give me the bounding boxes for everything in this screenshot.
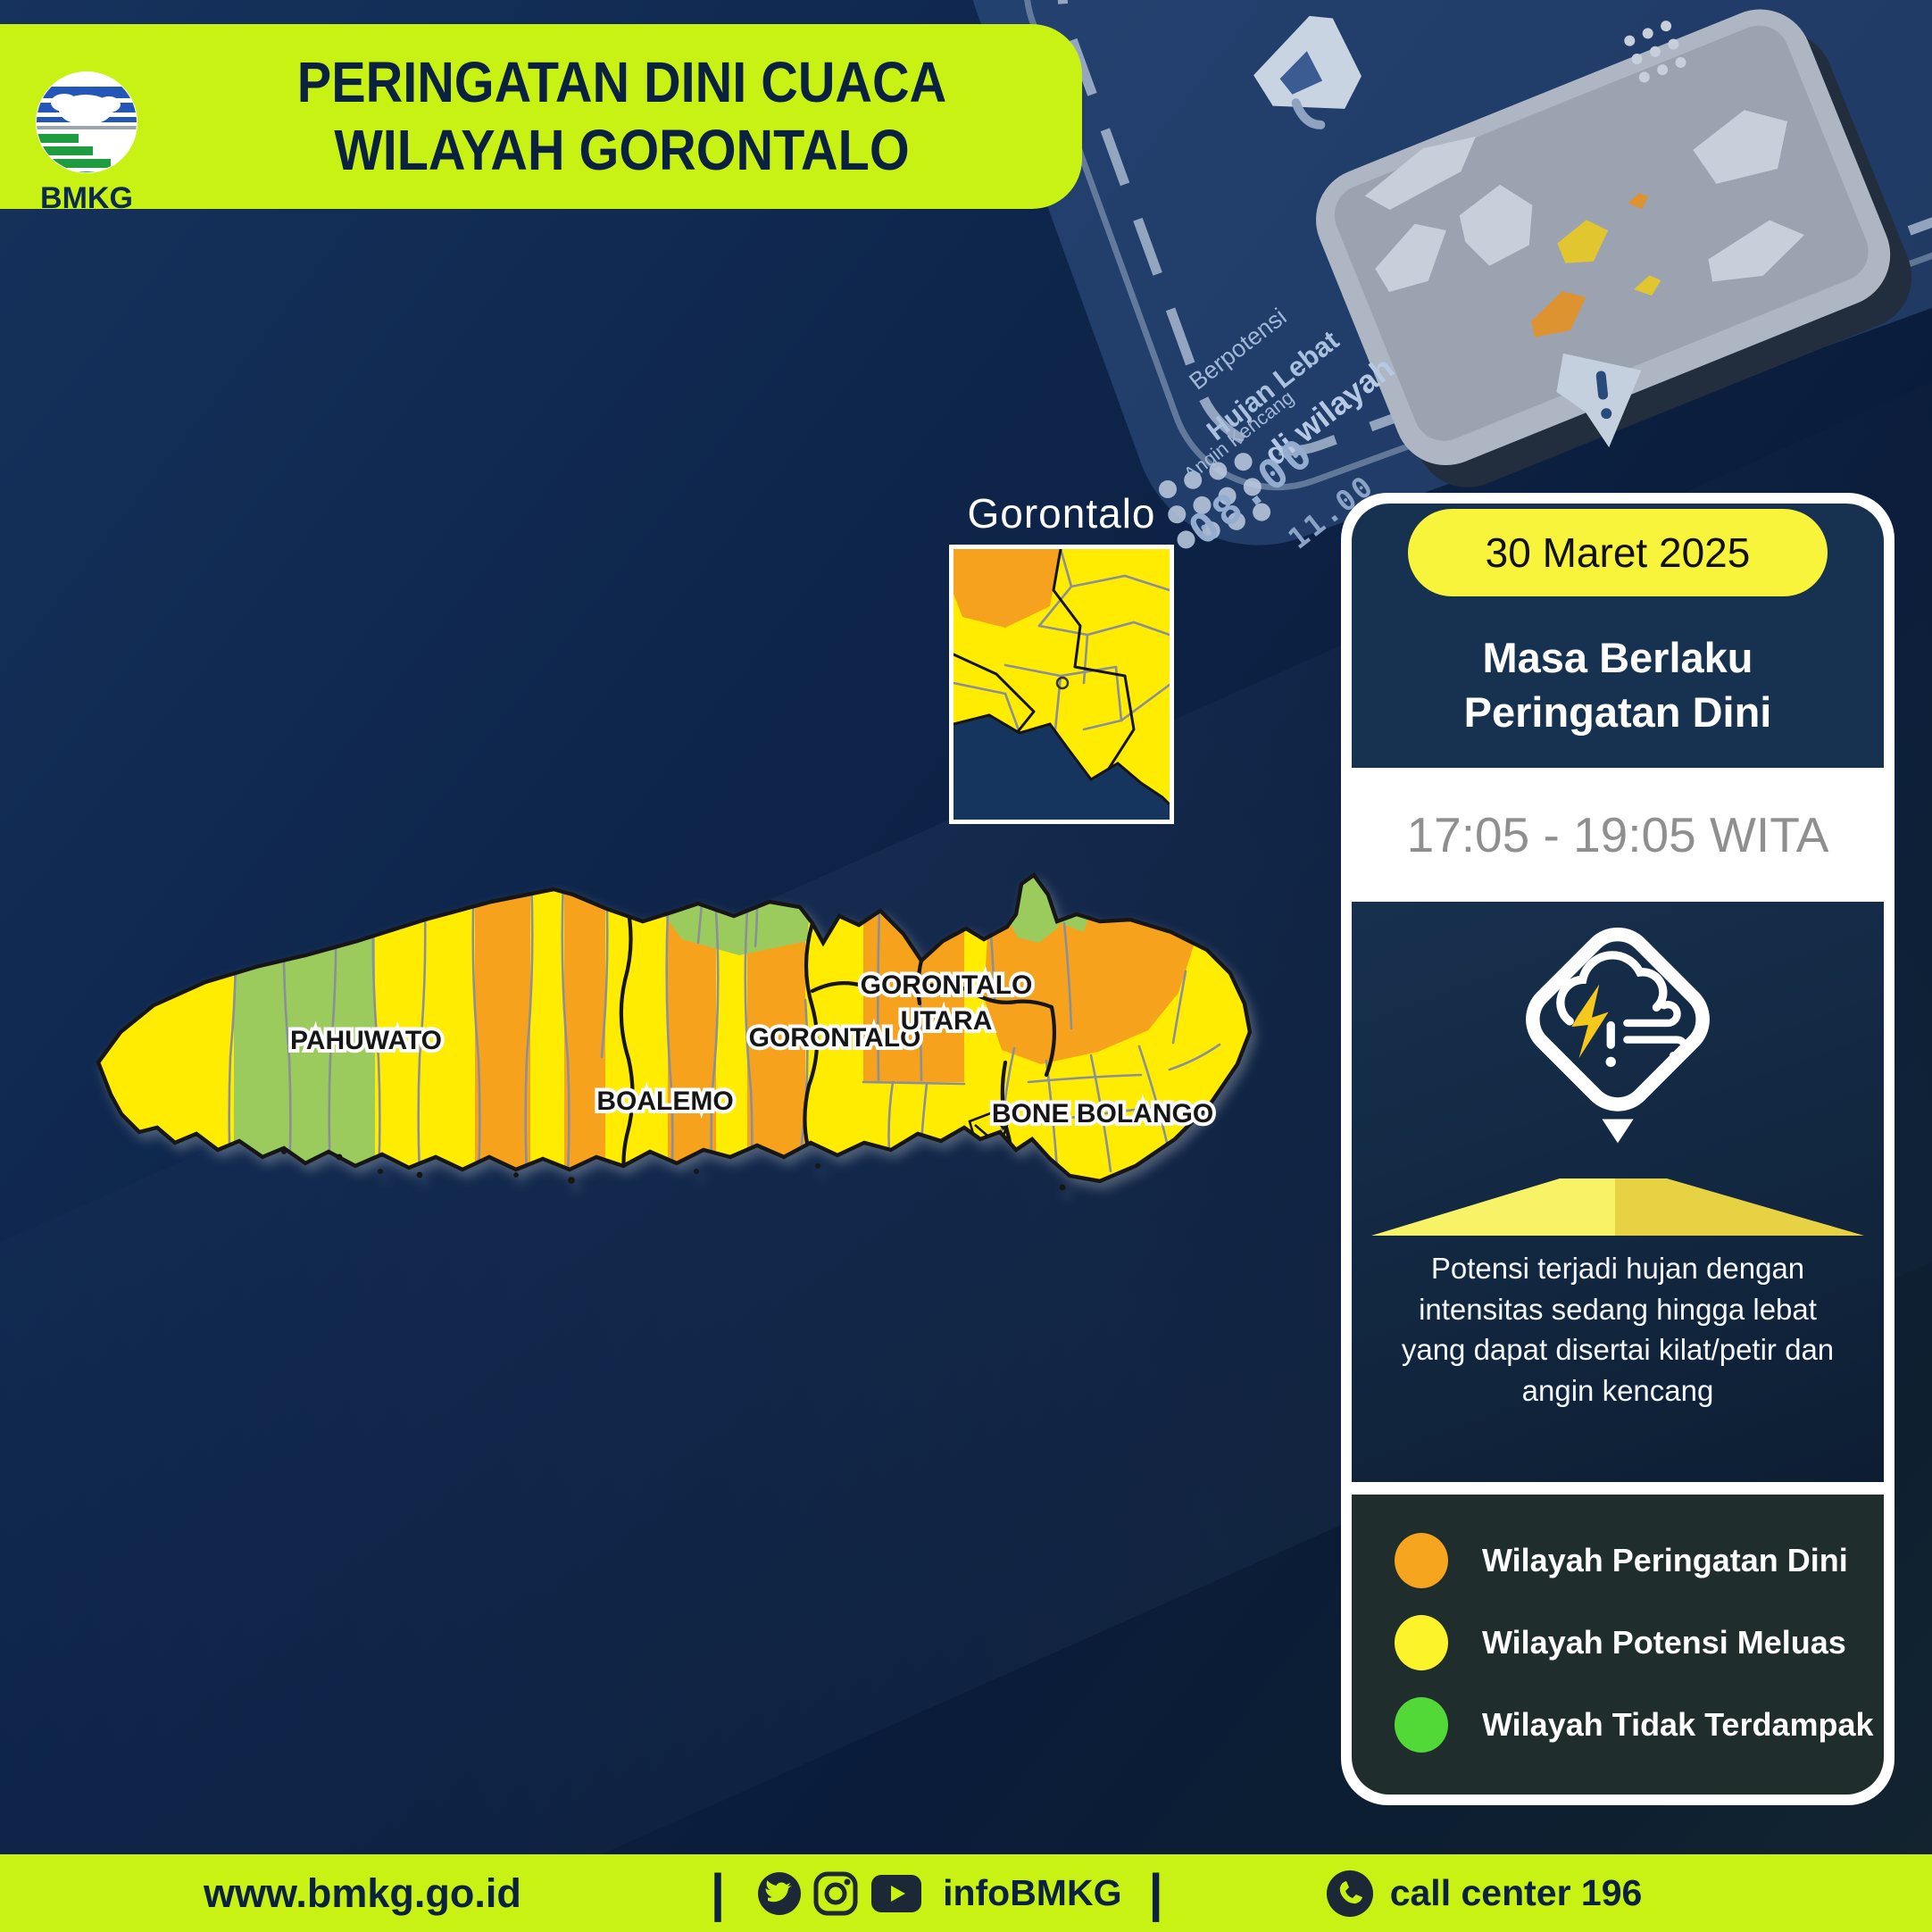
legend-green-dot	[1393, 1696, 1450, 1753]
infographic-canvas: Berpotensi Hujan Lebat Angin Kencang di …	[0, 0, 1932, 1932]
date-badge: 30 Maret 2025	[1408, 509, 1828, 596]
map-label-bone-bolango: BONE BOLANGO	[992, 1099, 1213, 1128]
legend-item-warning: Wilayah Peringatan Dini	[1393, 1532, 1884, 1589]
logo-text: BMKG	[40, 181, 133, 215]
title-line-2: WILAYAH GORONTALO	[334, 117, 909, 185]
website-link[interactable]: www.bmkg.go.id	[204, 1870, 521, 1917]
map-label-gorontalo-utara-2: UTARA	[901, 1006, 993, 1036]
legend-label: Wilayah Potensi Meluas	[1482, 1624, 1846, 1661]
desc-line: angin kencang	[1402, 1370, 1834, 1412]
validity-panel: 30 Maret 2025 Masa Berlaku Peringatan Di…	[1352, 504, 1884, 768]
map-label-gorontalo: GORONTALO	[749, 1023, 921, 1053]
legend-orange-dot	[1393, 1532, 1450, 1589]
inset-map-title: Gorontalo	[948, 489, 1175, 537]
separator: |	[1148, 1863, 1162, 1923]
map-label-gorontalo-utara-1: GORONTALO	[861, 970, 1033, 1000]
legend-panel: Wilayah Peringatan Dini Wilayah Potensi …	[1352, 1495, 1884, 1795]
separator: |	[711, 1863, 725, 1923]
time-range: 17:05 - 19:05 WITA	[1352, 768, 1884, 902]
validity-line-2: Peringatan Dini	[1352, 685, 1884, 739]
warning-info-card: 30 Maret 2025 Masa Berlaku Peringatan Di…	[1341, 493, 1895, 1805]
bmkg-logo: BMKG	[27, 63, 152, 215]
inset-map	[949, 545, 1174, 824]
hazard-description: Potensi terjadi hujan dengan intensitas …	[1402, 1248, 1834, 1411]
hazard-panel: Potensi terjadi hujan dengan intensitas …	[1352, 902, 1884, 1482]
map-label-boalemo: BOALEMO	[596, 1087, 733, 1116]
title-line-1: PERINGATAN DINI CUACA	[297, 49, 946, 117]
footer-bar: www.bmkg.go.id | infoBMKG | call center …	[0, 1854, 1932, 1932]
page-title: PERINGATAN DINI CUACA WILAYAH GORONTALO	[227, 24, 1017, 209]
desc-line: yang dapat disertai kilat/petir dan	[1402, 1329, 1834, 1370]
desc-line: Potensi terjadi hujan dengan	[1402, 1248, 1834, 1289]
time-range-text: 17:05 - 19:05 WITA	[1407, 806, 1829, 863]
map-label-pahuwato: PAHUWATO	[290, 1026, 442, 1055]
storm-warning-icon	[1448, 918, 1787, 1186]
legend-yellow-dot	[1393, 1614, 1450, 1671]
phone-icon	[1326, 1870, 1374, 1918]
youtube-icon[interactable]	[871, 1875, 921, 1912]
validity-title: Masa Berlaku Peringatan Dini	[1352, 630, 1884, 739]
legend-label: Wilayah Peringatan Dini	[1482, 1542, 1848, 1579]
instagram-icon[interactable]	[812, 1870, 859, 1917]
date-text: 30 Maret 2025	[1486, 529, 1751, 577]
call-center-text[interactable]: call center 196	[1390, 1872, 1643, 1914]
twitter-icon[interactable]	[757, 1871, 802, 1916]
landmark-mound	[1359, 1155, 1877, 1237]
inset-map-block: Gorontalo	[948, 489, 1175, 824]
legend-label: Wilayah Tidak Terdampak	[1482, 1706, 1874, 1744]
lightning-icon	[1571, 984, 1608, 1058]
validity-line-1: Masa Berlaku	[1352, 630, 1884, 685]
desc-line: intensitas sedang hingga lebat	[1402, 1289, 1834, 1330]
legend-item-unaffected: Wilayah Tidak Terdampak	[1393, 1696, 1884, 1753]
header-banner: BMKG PERINGATAN DINI CUACA WILAYAH GORON…	[0, 24, 1082, 209]
legend-item-potential: Wilayah Potensi Meluas	[1393, 1614, 1884, 1671]
wind-icon	[1627, 1004, 1677, 1023]
social-handle[interactable]: infoBMKG	[943, 1872, 1121, 1914]
gorontalo-province-map: PAHUWATO BOALEMO GORONTALO GORONTALO UTA…	[71, 857, 1268, 1250]
